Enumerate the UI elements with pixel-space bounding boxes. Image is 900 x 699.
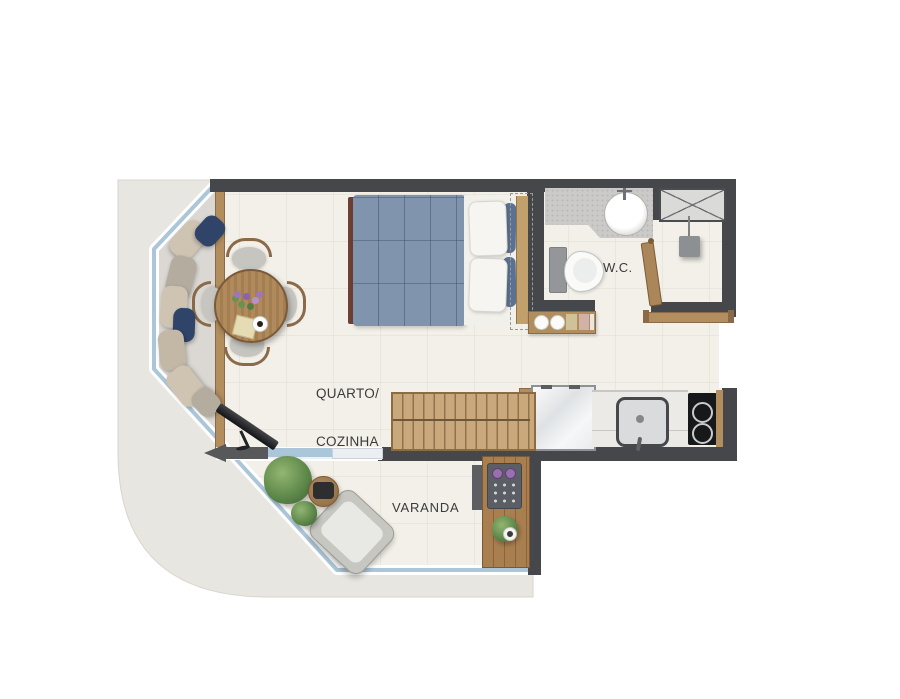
room-label-line1: QUARTO/ bbox=[316, 386, 379, 402]
bathroom-window bbox=[659, 188, 726, 222]
dining-chair bbox=[226, 238, 272, 268]
flower-vase bbox=[234, 291, 241, 298]
refrigerator-handle bbox=[541, 385, 552, 389]
side-table-tray bbox=[313, 482, 334, 499]
washbasin bbox=[604, 192, 648, 236]
wall-kitchen-right bbox=[722, 388, 737, 461]
console-box bbox=[579, 314, 589, 330]
kitchen-sink bbox=[616, 397, 669, 447]
sink-drain bbox=[636, 415, 644, 423]
grill-grate bbox=[491, 481, 518, 505]
wardrobe-outline bbox=[510, 193, 533, 330]
balcony-plant-large bbox=[264, 456, 312, 504]
room-label: QUARTO/ COZINHA bbox=[316, 354, 379, 482]
grill-plant-pot bbox=[503, 527, 517, 541]
grill-knob bbox=[492, 468, 503, 479]
cooktop bbox=[688, 393, 717, 445]
bar-table bbox=[391, 392, 536, 451]
entrance-arrow bbox=[204, 444, 268, 462]
shower-arm bbox=[688, 216, 690, 238]
bed-blanket bbox=[353, 195, 465, 326]
bar-table-seam bbox=[393, 419, 530, 421]
coffee-cup bbox=[252, 316, 268, 332]
grill-knob bbox=[505, 468, 516, 479]
barbecue-grill bbox=[487, 463, 522, 509]
console-bowl bbox=[534, 315, 549, 330]
refrigerator bbox=[531, 385, 596, 451]
cooktop-burner bbox=[692, 423, 713, 444]
refrigerator-handle bbox=[569, 385, 580, 389]
balcony-plant-small bbox=[291, 501, 317, 526]
bed-pillow bbox=[468, 200, 508, 256]
grill-plant-pot-center bbox=[507, 531, 513, 537]
service-window-opening bbox=[719, 317, 740, 388]
console-box bbox=[566, 314, 577, 330]
grill-side-shelf bbox=[472, 465, 482, 510]
wc-label: W.C. bbox=[603, 260, 632, 276]
shower-head bbox=[679, 236, 700, 257]
floor-plan-base bbox=[0, 0, 900, 699]
wc-door-hinge bbox=[648, 238, 654, 244]
console-bowl bbox=[550, 315, 565, 330]
double-bed bbox=[348, 195, 520, 327]
bed-pillow bbox=[468, 257, 508, 312]
towel-bar-cap bbox=[643, 310, 649, 323]
floor-plan: QUARTO/ COZINHA W.C. VARANDA bbox=[0, 0, 900, 699]
room-label-line2: COZINHA bbox=[316, 434, 379, 450]
towel-bar-cap bbox=[728, 310, 734, 323]
washbasin-faucet-handle bbox=[617, 190, 632, 192]
bedside-console bbox=[528, 311, 596, 334]
coffee-cup-center bbox=[257, 321, 263, 327]
counter-end-panel bbox=[716, 390, 723, 447]
varanda-label: VARANDA bbox=[392, 500, 459, 516]
cooktop-burner bbox=[692, 402, 713, 423]
towel-bar bbox=[645, 312, 734, 323]
entrance-arrow-head bbox=[204, 444, 226, 462]
dining-chair-seat bbox=[232, 247, 266, 269]
toilet-seat bbox=[573, 258, 597, 283]
console-box bbox=[590, 314, 594, 330]
